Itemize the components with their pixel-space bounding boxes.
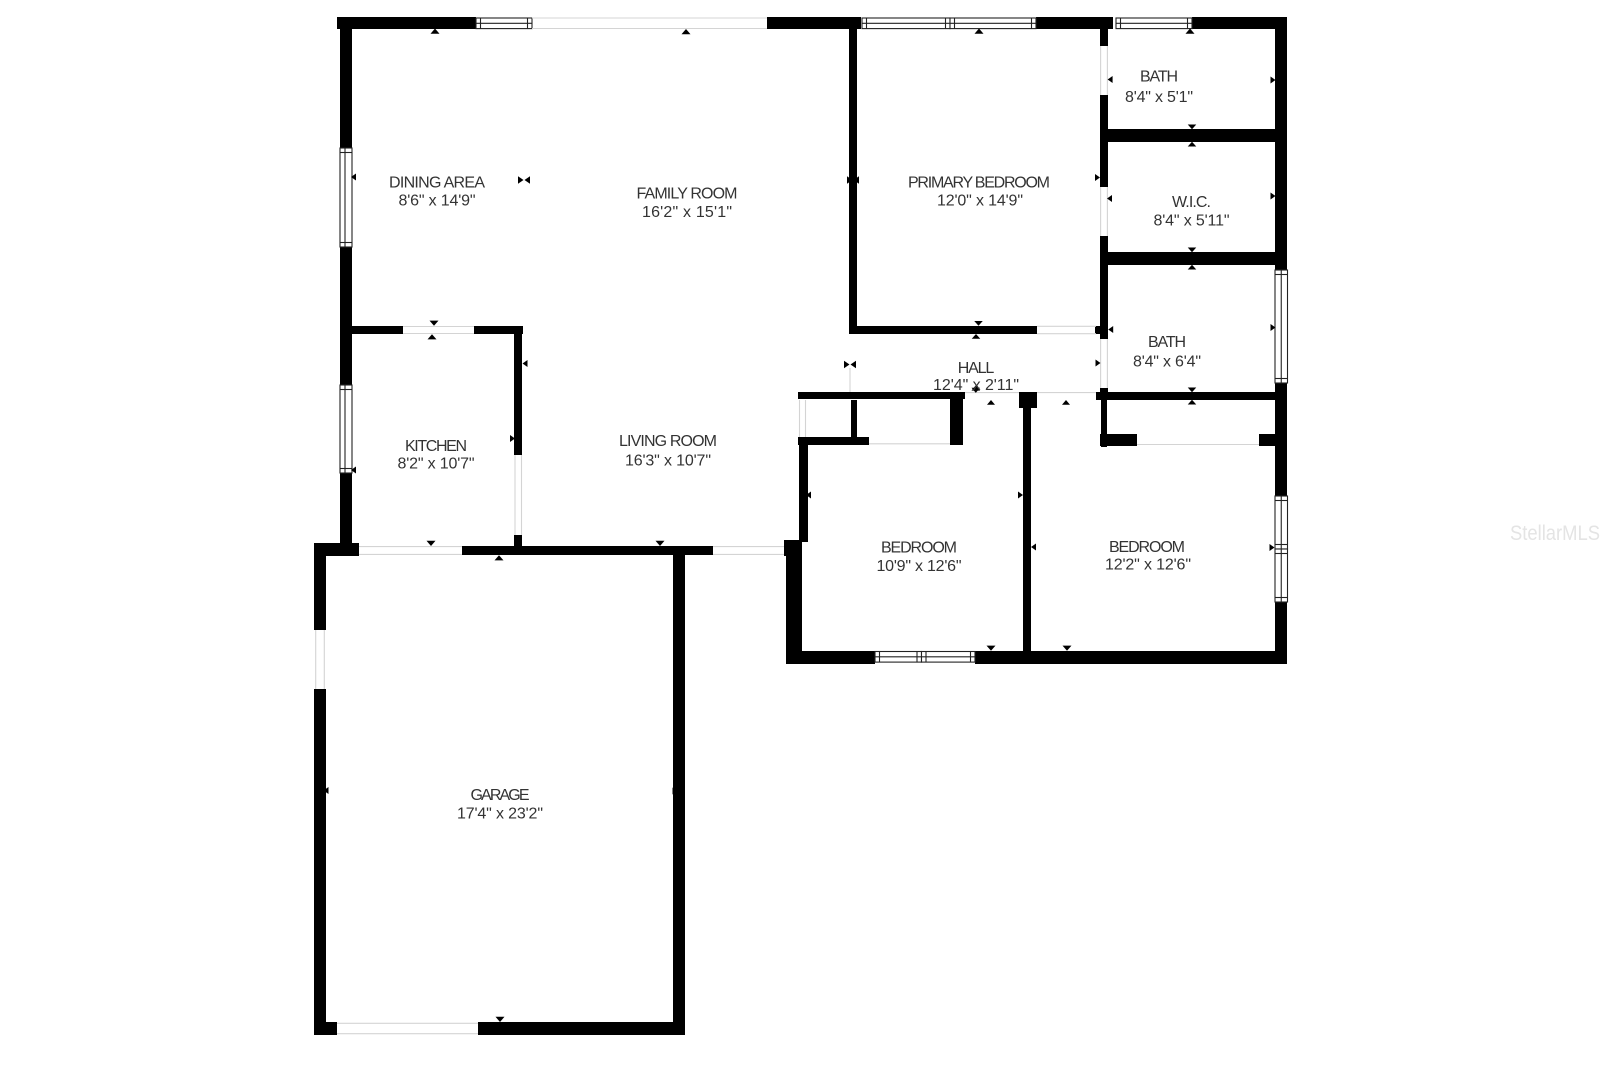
svg-text:8'4" x 6'4": 8'4" x 6'4" — [1133, 354, 1201, 371]
svg-text:PRIMARY BEDROOM: PRIMARY BEDROOM — [908, 174, 1050, 191]
svg-text:12'4" x 2'11": 12'4" x 2'11" — [933, 377, 1019, 394]
svg-text:17'4" x 23'2": 17'4" x 23'2" — [457, 806, 543, 823]
svg-text:8'6" x 14'9": 8'6" x 14'9" — [399, 192, 476, 209]
svg-text:12'2" x 12'6": 12'2" x 12'6" — [1105, 557, 1191, 574]
svg-text:16'2" x 15'1": 16'2" x 15'1" — [642, 204, 732, 221]
svg-text:GARAGE: GARAGE — [471, 787, 530, 804]
svg-text:W.I.C.: W.I.C. — [1172, 194, 1211, 211]
svg-text:BEDROOM: BEDROOM — [1109, 539, 1185, 556]
svg-text:8'4" x 5'11": 8'4" x 5'11" — [1154, 213, 1230, 230]
svg-text:BEDROOM: BEDROOM — [881, 540, 957, 557]
svg-text:LIVING ROOM: LIVING ROOM — [619, 433, 717, 450]
svg-text:StellarMLS: StellarMLS — [1510, 521, 1600, 545]
svg-text:16'3" x 10'7": 16'3" x 10'7" — [625, 453, 711, 470]
svg-text:DINING AREA: DINING AREA — [389, 174, 485, 191]
svg-text:BATH: BATH — [1140, 69, 1178, 86]
svg-text:HALL: HALL — [958, 360, 995, 377]
svg-text:BATH: BATH — [1148, 334, 1186, 351]
svg-text:10'9" x 12'6": 10'9" x 12'6" — [877, 558, 962, 575]
svg-text:FAMILY ROOM: FAMILY ROOM — [637, 185, 738, 202]
svg-text:8'2" x 10'7": 8'2" x 10'7" — [398, 456, 475, 473]
svg-text:KITCHEN: KITCHEN — [405, 438, 467, 455]
svg-text:8'4" x 5'1": 8'4" x 5'1" — [1125, 89, 1193, 106]
svg-text:12'0" x 14'9": 12'0" x 14'9" — [937, 192, 1023, 209]
